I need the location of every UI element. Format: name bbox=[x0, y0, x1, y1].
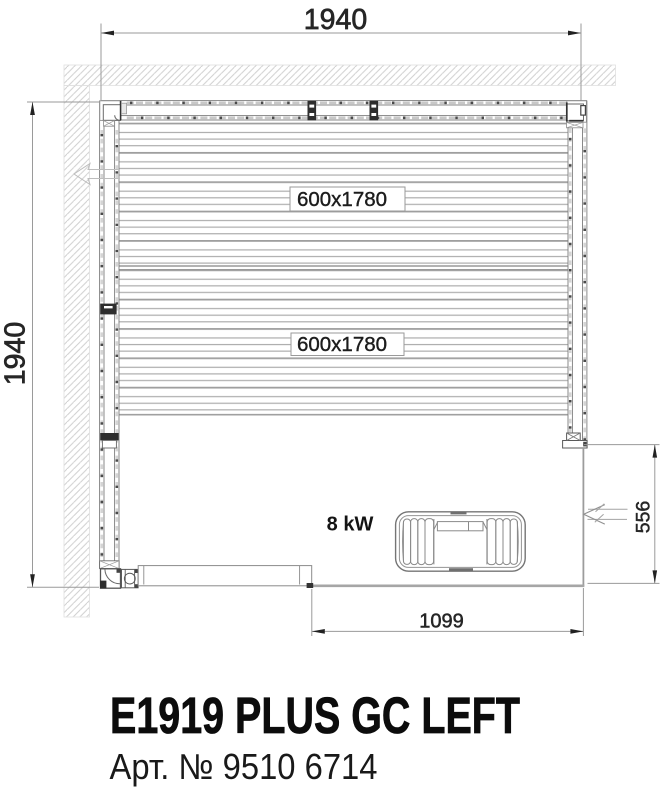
svg-text:1940: 1940 bbox=[0, 322, 32, 385]
svg-text:1940: 1940 bbox=[304, 4, 367, 36]
svg-text:Арт. № 9510 6714: Арт. № 9510 6714 bbox=[110, 746, 378, 787]
svg-text:E1919 PLUS GC LEFT: E1919 PLUS GC LEFT bbox=[110, 687, 520, 744]
svg-text:8 kW: 8 kW bbox=[327, 514, 374, 536]
svg-text:600x1780: 600x1780 bbox=[297, 188, 387, 211]
svg-text:600x1780: 600x1780 bbox=[297, 333, 387, 356]
svg-text:556: 556 bbox=[633, 501, 655, 534]
svg-text:1099: 1099 bbox=[419, 611, 464, 633]
